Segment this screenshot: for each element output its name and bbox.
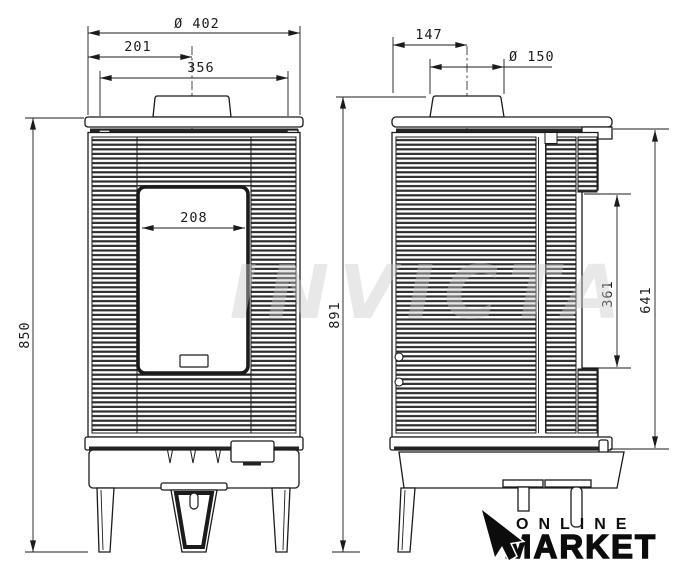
dim-side-flue-diameter: Ø 150 xyxy=(509,49,555,65)
dim-front-height: 850 xyxy=(17,321,33,348)
front-ribs-bottom xyxy=(137,374,251,433)
online-market-logo: ONLINE MARKET xyxy=(482,510,657,565)
front-control-box-foot xyxy=(243,462,261,466)
front-flue-collar xyxy=(153,96,231,117)
dim-front-total-width: Ø 402 xyxy=(174,16,220,32)
side-top-plate xyxy=(392,117,612,127)
dim-front-glass-width: 208 xyxy=(180,210,207,226)
side-leg-front xyxy=(398,488,415,552)
front-top-plate xyxy=(85,117,303,127)
stove-technical-drawing: Ø 402 201 356 208 850 891 xyxy=(0,0,680,573)
side-flue-collar xyxy=(430,96,504,117)
front-top-gasket xyxy=(90,129,298,133)
logo-line2: MARKET xyxy=(504,528,657,565)
front-leg-center-plate xyxy=(161,483,227,490)
dim-front-top-width: 356 xyxy=(187,60,214,76)
front-leg-center-slot xyxy=(190,493,198,509)
side-leg-mid xyxy=(518,487,529,511)
front-ribs-top xyxy=(137,137,251,186)
side-bracket-plate-1 xyxy=(503,480,543,487)
dim-side-body-height: 641 xyxy=(638,286,654,313)
side-lip-gasket xyxy=(394,447,608,450)
front-leg-right xyxy=(272,488,290,552)
front-door-vent xyxy=(180,355,208,367)
side-seam-notch xyxy=(545,133,557,144)
side-bracket-plate-2 xyxy=(545,480,591,487)
drawing-svg: Ø 402 201 356 208 850 891 xyxy=(0,0,680,573)
side-ribs-rear-bottom xyxy=(578,369,597,433)
side-top-gasket xyxy=(396,129,582,133)
front-ribs-left xyxy=(92,137,137,433)
front-leg-left xyxy=(97,488,114,552)
front-control-box xyxy=(231,441,274,462)
dim-side-flue-offset: 147 xyxy=(415,27,442,43)
watermark-text: INVICTA xyxy=(230,250,631,336)
dim-front-flue-offset: 201 xyxy=(124,39,151,55)
side-ribs-rear-top xyxy=(578,137,597,192)
side-hinge-top xyxy=(395,353,403,361)
side-hinge-bottom xyxy=(395,378,403,386)
